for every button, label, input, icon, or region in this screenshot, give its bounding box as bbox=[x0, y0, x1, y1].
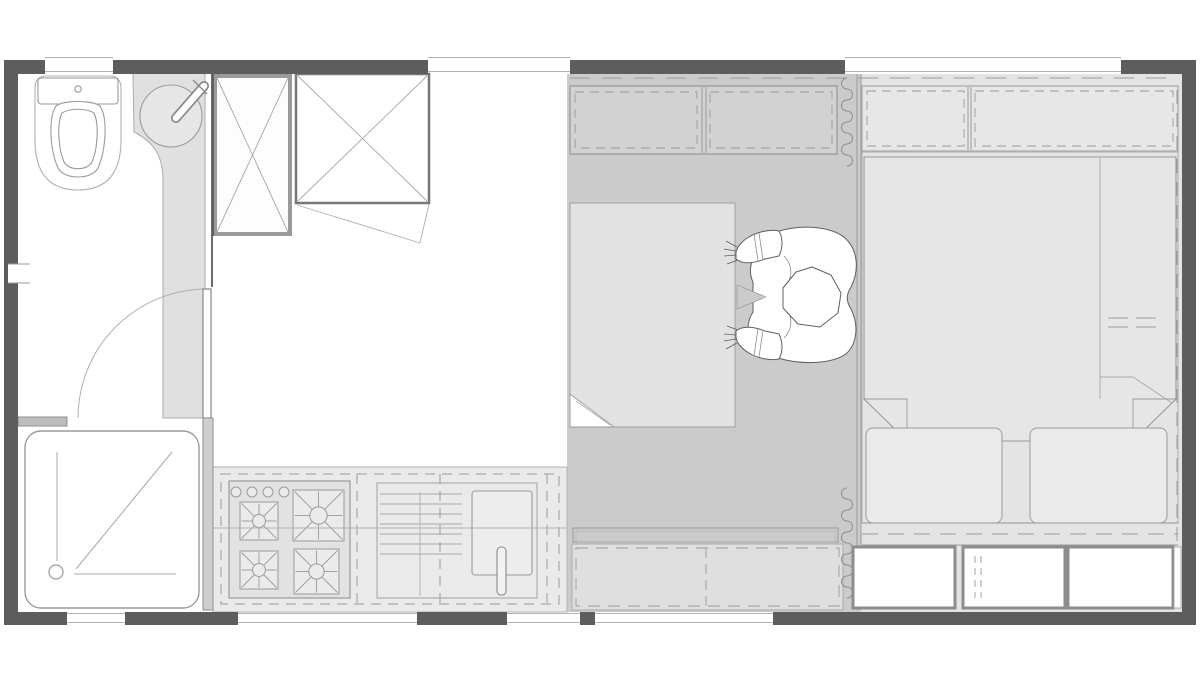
flush-button bbox=[75, 86, 81, 92]
shower-side-wall bbox=[203, 418, 213, 610]
bathroom-door-leaf bbox=[203, 289, 211, 418]
duvet bbox=[864, 157, 1176, 441]
stove-knob bbox=[247, 487, 257, 497]
workspace-overhead-cabinets bbox=[570, 86, 837, 154]
drawer bbox=[853, 547, 955, 608]
wall-segment bbox=[580, 612, 595, 625]
floor-plan-canvas bbox=[0, 0, 1200, 679]
bathroom-wall-stub bbox=[18, 417, 67, 426]
desk bbox=[570, 203, 735, 427]
wall-segment bbox=[570, 60, 845, 74]
pillow-left bbox=[866, 428, 1002, 523]
burner bbox=[240, 551, 278, 589]
wall-segment bbox=[773, 612, 1196, 625]
wall-segment bbox=[4, 612, 67, 625]
stove-4-burner bbox=[229, 481, 350, 598]
wall-segment bbox=[125, 612, 238, 625]
person-at-desk bbox=[724, 227, 856, 362]
wardrobes bbox=[213, 74, 429, 243]
shower bbox=[25, 418, 213, 610]
wall-segment bbox=[113, 60, 428, 74]
under-bed-drawers bbox=[853, 547, 1181, 608]
kitchen-area bbox=[213, 467, 567, 612]
toilet bbox=[35, 76, 121, 190]
stove-knob bbox=[279, 487, 289, 497]
bedroom-overhead-cabinets bbox=[862, 86, 1178, 151]
wall-segment bbox=[4, 60, 45, 74]
drawer bbox=[963, 547, 1065, 608]
shower-drain bbox=[49, 565, 63, 579]
shower-tray bbox=[25, 431, 199, 608]
wall-segment bbox=[4, 60, 18, 625]
wardrobe-open-door bbox=[297, 204, 429, 243]
drawer bbox=[1068, 547, 1173, 608]
wall-niche bbox=[8, 264, 30, 283]
wardrobe-small bbox=[213, 74, 290, 236]
kitchen-faucet bbox=[497, 547, 506, 595]
wardrobe-large bbox=[296, 74, 429, 243]
burner bbox=[293, 490, 344, 541]
stove-knob bbox=[263, 487, 273, 497]
bathroom-area bbox=[18, 73, 213, 610]
burner bbox=[294, 549, 339, 594]
pillow-right bbox=[1030, 428, 1167, 523]
wall-segment bbox=[417, 612, 507, 625]
stove-knob bbox=[231, 487, 241, 497]
burner bbox=[240, 502, 278, 540]
wall-segment bbox=[1182, 60, 1196, 625]
